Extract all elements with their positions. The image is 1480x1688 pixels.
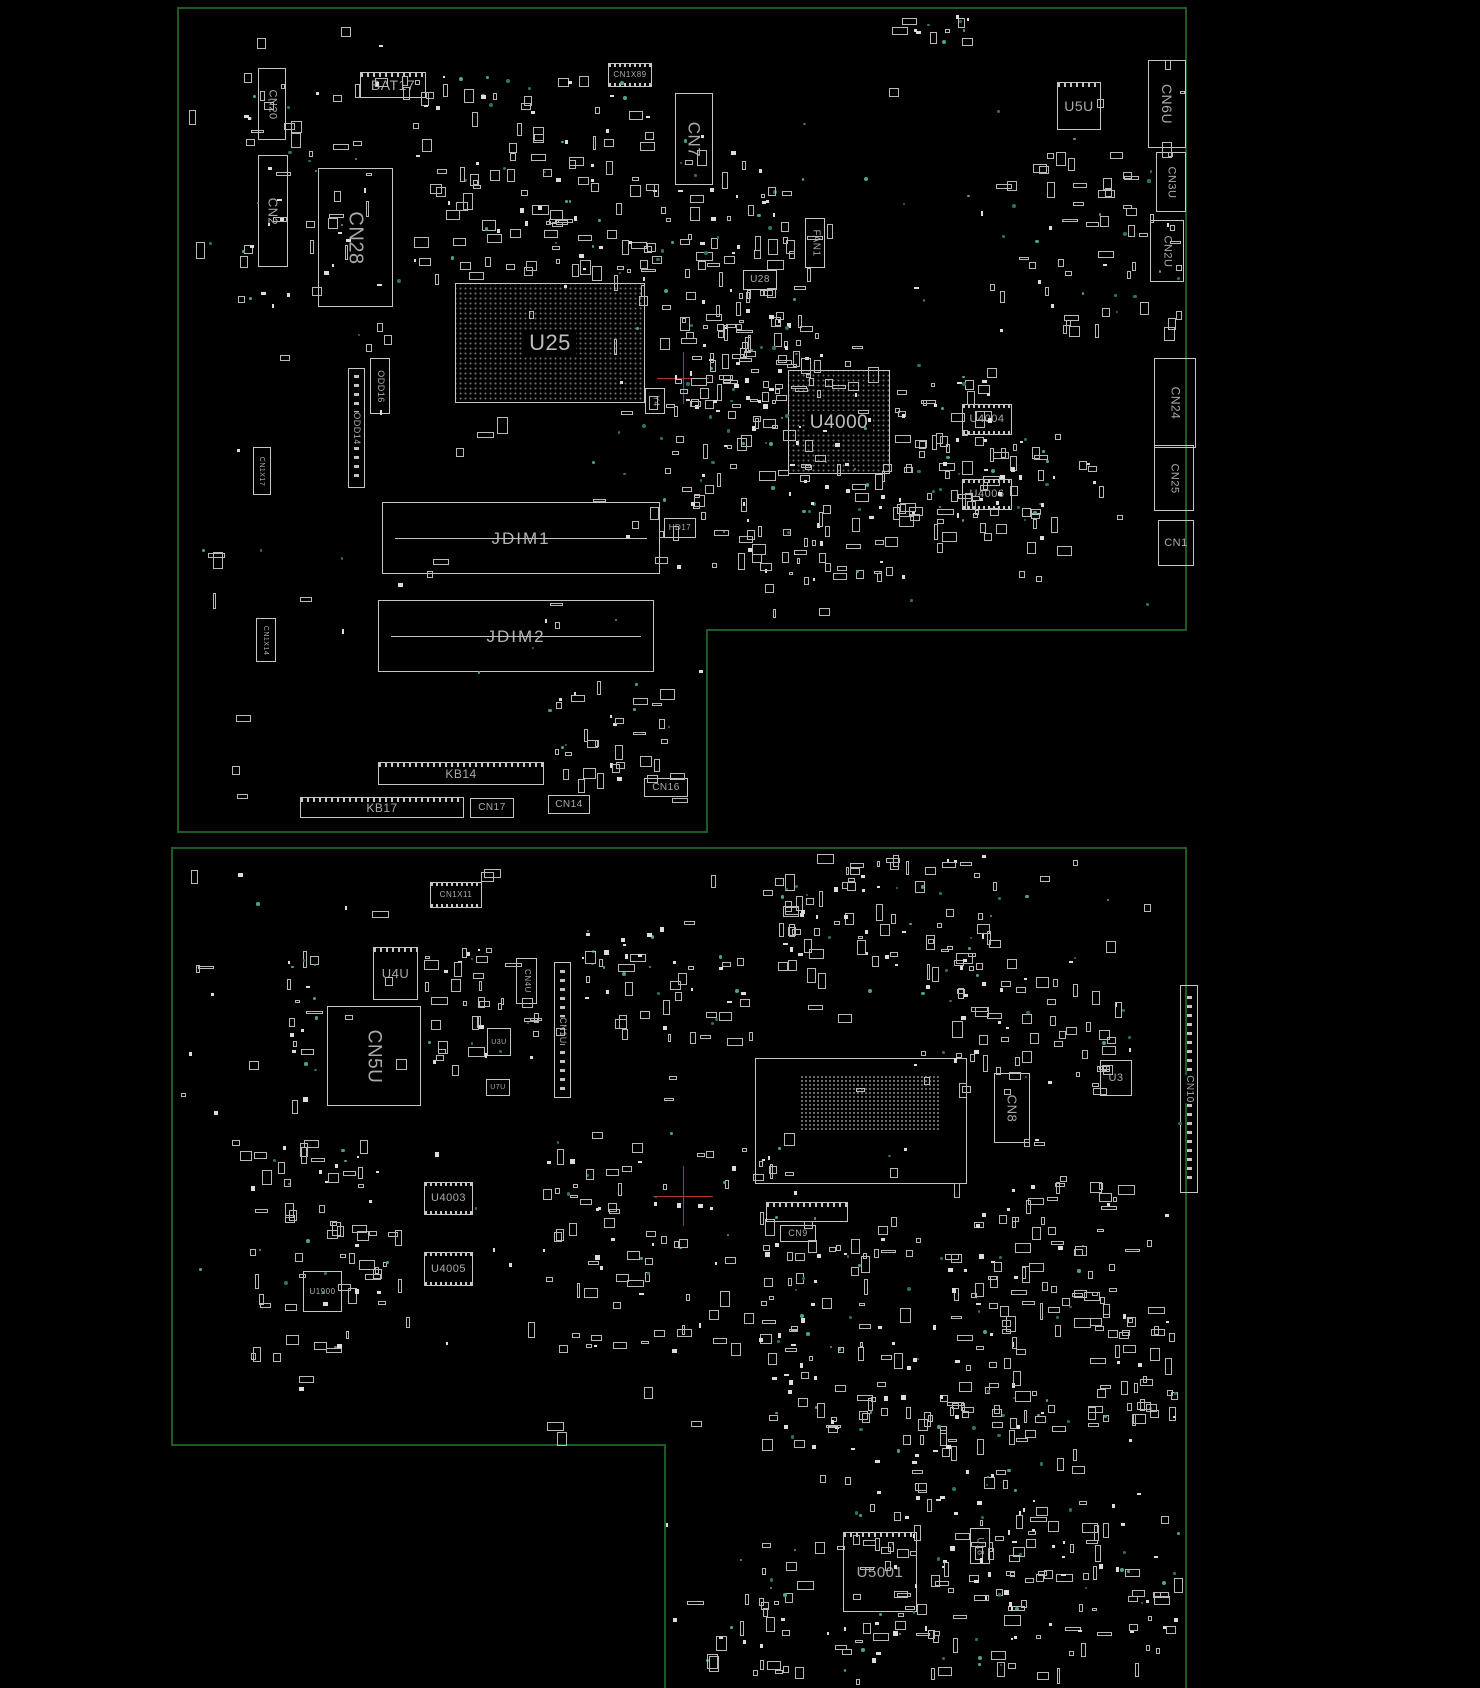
solder-pad [980,498,983,501]
small-part [1000,1306,1010,1316]
small-part [898,1613,904,1617]
solder-pad [881,1238,885,1241]
small-part [930,32,937,45]
via-dot [923,299,925,301]
via-dot [569,200,572,203]
via-dot [719,955,723,959]
small-part [1028,1531,1037,1535]
small-part [952,1021,963,1038]
solder-pad [724,445,726,447]
via-dot [273,1159,276,1162]
small-part [934,524,938,540]
small-part [700,388,709,399]
small-part [959,1083,967,1098]
small-part [672,451,679,455]
via-dot [341,1149,345,1153]
small-part [946,909,954,917]
solder-pad [736,362,740,365]
via-dot [967,195,969,197]
small-part [353,141,362,146]
small-part [954,1183,960,1198]
small-part [832,385,846,390]
small-part [1099,486,1103,498]
small-part [1101,1206,1117,1211]
solder-pad [376,1171,379,1173]
solder-pad [1011,1638,1013,1640]
small-part [1042,1282,1048,1291]
small-part [679,1239,687,1248]
small-part [775,1670,783,1674]
via-dot [506,79,510,83]
small-part [1102,1046,1116,1055]
small-part [809,1356,812,1361]
solder-pad [701,135,704,138]
small-part [329,214,344,219]
small-part [669,1076,677,1079]
solder-pad [817,1254,822,1258]
small-part [1079,1501,1087,1505]
small-part [995,1536,1004,1541]
via-dot [806,894,808,896]
solder-pad [872,1658,876,1663]
small-part [486,948,492,952]
small-part [938,1667,952,1676]
small-part [1032,1391,1037,1396]
small-part [181,1093,186,1097]
via-dot [795,1289,797,1291]
small-part [680,389,689,394]
solder-pad [1112,1504,1115,1508]
small-part [557,1149,563,1165]
via-dot [830,1346,832,1348]
solder-pad [1121,1523,1125,1526]
solder-pad [996,501,999,505]
small-part [801,358,811,374]
via-dot [828,936,831,939]
small-part [1073,183,1088,188]
solder-pad [565,140,568,144]
small-part [1150,1348,1160,1360]
via-dot [927,24,930,27]
small-part [1128,1596,1139,1601]
small-part [1036,1574,1044,1581]
solder-pad [766,200,768,203]
small-part [1032,447,1040,458]
small-part [798,1398,808,1406]
component-label: CN17 [478,803,506,813]
small-part [736,302,741,316]
small-part [694,494,700,498]
small-part [1165,60,1172,70]
via-dot [636,327,639,330]
solder-pad [357,1156,360,1159]
small-part [740,999,750,1007]
via-dot [921,992,924,995]
via-dot [592,245,594,247]
small-part [788,927,796,937]
small-part [710,360,716,372]
solder-pad [1004,1590,1009,1594]
small-part [980,1520,983,1526]
small-part [958,988,964,999]
small-part [1098,251,1115,258]
small-part [817,390,821,398]
small-part [1148,1616,1152,1621]
solder-pad [907,1366,911,1370]
small-part [633,732,646,736]
small-part [815,1542,825,1554]
small-part [1174,1578,1183,1593]
solder-pad [509,1263,512,1267]
small-part [1076,1072,1080,1077]
solder-pad [875,1460,880,1464]
small-part [744,1313,754,1324]
via-dot [1146,603,1149,606]
small-part [1088,1407,1096,1419]
component-label: CN25 [1169,463,1180,493]
small-part [529,311,534,318]
via-dot [932,490,935,493]
solder-pad [646,116,651,119]
small-part [1132,262,1136,270]
small-part [781,222,789,232]
solder-pad [652,1243,655,1246]
small-part [1103,1304,1110,1315]
via-dot [751,349,754,352]
small-part [1003,1480,1008,1489]
small-part [782,191,792,196]
via-dot [783,1593,787,1597]
small-part [976,963,983,970]
solder-pad [398,583,403,587]
small-part [1106,941,1116,953]
small-part [992,1409,1001,1417]
small-part [1103,1523,1109,1538]
small-part [1092,991,1100,1004]
solder-pad [250,245,255,248]
small-part [431,997,447,1005]
small-part [1009,1072,1021,1080]
small-part [717,384,722,401]
small-part [641,1341,649,1344]
small-part [604,139,613,147]
via-dot [945,969,948,972]
small-part [377,323,383,333]
component-u5u: U5U [1057,82,1101,130]
small-part [760,1212,764,1225]
small-part [991,1651,1007,1659]
via-dot [565,744,567,746]
small-part [278,1162,284,1175]
small-part [975,437,984,446]
small-part [1170,225,1174,231]
solder-pad [977,1501,982,1505]
small-part [456,448,463,458]
solder-pad [759,1338,764,1342]
via-dot [1116,311,1118,313]
solder-pad [1007,1208,1010,1211]
solder-pad [820,354,823,357]
solder-pad [904,1148,907,1151]
via-dot [1123,232,1127,236]
solder-pad [895,964,898,966]
small-part [189,110,196,125]
small-part [919,441,926,449]
solder-pad [894,1565,897,1569]
solder-pad [1103,264,1107,266]
solder-pad [778,369,782,373]
small-part [1024,1410,1027,1423]
small-part [902,18,918,26]
solder-pad [759,169,762,173]
small-part [360,1140,368,1153]
small-part [875,540,885,545]
solder-pad [604,950,608,955]
small-part [249,1061,259,1070]
component-cn2u: CN2U [1150,220,1184,282]
solder-pad [346,239,351,242]
solder-pad [1017,1425,1020,1429]
small-part [469,272,483,280]
solder-pad [788,1390,792,1395]
small-part [558,219,573,223]
small-part [769,1415,778,1421]
small-part [1088,1271,1093,1278]
small-part [606,1169,619,1176]
solder-pad [791,1344,796,1346]
via-dot [803,123,805,125]
solder-pad [306,986,310,988]
small-part [951,1446,957,1462]
small-part [617,266,624,270]
small-part [842,882,848,889]
solder-pad [892,1342,895,1345]
small-part [654,1330,665,1338]
solder-pad [974,1050,978,1054]
via-dot [1073,138,1076,141]
solder-pad [914,29,917,32]
solder-pad [845,463,849,466]
small-part [592,266,602,281]
small-part [774,1601,779,1605]
small-part [1165,1358,1172,1375]
small-part [747,530,754,540]
small-part [1024,1139,1030,1147]
solder-pad [796,441,799,445]
component-u28: U28 [743,270,777,290]
small-part [259,1294,263,1305]
small-part [855,493,868,503]
small-part [614,275,618,291]
small-part [580,1199,591,1205]
small-part [251,1353,256,1360]
via-dot [802,178,805,181]
solder-pad [881,495,885,499]
small-part [402,76,407,86]
via-dot [998,897,1001,900]
solder-pad [287,293,290,297]
small-part [1086,1022,1090,1032]
small-part [947,946,953,950]
small-part [815,455,826,463]
small-part [962,430,968,436]
solder-pad [700,242,704,245]
small-part [762,1439,772,1451]
small-part [649,396,658,411]
via-dot [565,200,568,203]
solder-pad [940,1395,944,1399]
small-part [791,1326,799,1331]
small-part [533,1031,540,1036]
small-part [505,963,522,966]
solder-pad [248,117,250,120]
small-part [586,1169,594,1179]
small-part [894,1353,903,1369]
small-part [1093,1566,1097,1580]
solder-pad [964,994,968,997]
small-part [791,386,807,389]
small-part [1092,1608,1098,1612]
small-part [621,411,633,415]
small-part [942,532,957,542]
small-part [236,715,251,723]
solder-pad [925,1626,927,1630]
small-part [877,861,881,868]
small-part [682,487,693,492]
via-dot [939,506,941,508]
small-part [1008,1663,1016,1669]
component-u4005: U4005 [424,1252,473,1286]
via-dot [864,427,867,430]
solder-pad [747,519,749,523]
small-part [812,540,816,545]
component-label: U5U [1064,99,1094,113]
component-cn7: CN7 [675,93,713,185]
small-part [593,499,605,502]
small-part [1057,1668,1060,1683]
small-part [295,1253,303,1262]
small-part [1066,1027,1076,1035]
small-part [965,380,973,390]
small-part [260,91,265,101]
small-part [345,245,348,261]
via-dot [791,1435,795,1439]
small-part [951,1316,963,1319]
via-dot [308,160,311,163]
small-part [1072,1466,1085,1474]
via-dot [793,298,796,301]
small-part [452,1065,459,1075]
small-part [1108,1330,1118,1337]
solder-pad [594,1345,597,1347]
solder-pad [933,1450,938,1452]
solder-pad [915,1454,919,1457]
solder-pad [1117,1361,1120,1365]
solder-pad [1033,1500,1036,1502]
small-part [846,544,861,549]
small-part [895,435,912,442]
small-part [827,224,833,239]
via-dot [1150,170,1153,173]
solder-pad [638,954,642,957]
small-part [783,430,796,441]
small-part [845,361,851,367]
small-part [778,355,787,364]
small-part [1057,546,1072,556]
small-part [664,1098,674,1101]
small-part [403,87,410,100]
small-part [763,890,773,896]
solder-pad [654,1202,657,1206]
small-part [544,230,558,238]
solder-pad [1129,1439,1132,1442]
via-dot [344,1160,347,1163]
small-part [1033,519,1037,529]
small-part [937,923,942,929]
solder-pad [823,430,826,432]
via-dot [592,461,595,464]
solder-pad [967,18,969,21]
solder-pad [591,164,594,167]
component-label: HD17 [669,524,691,532]
solder-pad [564,285,566,288]
via-dot [727,429,731,433]
small-part [1047,1197,1057,1202]
via-dot [940,1257,943,1260]
small-part [900,1308,911,1322]
small-part [1099,1030,1110,1040]
small-part [372,911,389,918]
small-part [301,1147,306,1163]
small-part [1048,1307,1060,1313]
via-dot [709,415,713,419]
small-part [295,1000,300,1004]
solder-pad [789,1380,793,1385]
component-cn9-conn [766,1202,848,1222]
via-dot [1147,179,1150,182]
solder-pad [957,513,959,517]
small-part [767,260,784,269]
via-dot [640,1257,643,1260]
solder-pad [710,1207,713,1210]
solder-pad [596,1208,600,1211]
component-cn10: CN10 [1180,985,1198,1193]
small-part [543,1189,552,1200]
small-part [319,1205,325,1213]
via-dot [1040,1462,1043,1465]
solder-pad [369,1200,372,1203]
small-part [997,1662,1005,1677]
solder-pad [745,378,749,383]
small-part [741,435,751,447]
small-part [1117,515,1122,520]
small-part [787,364,797,367]
small-part [681,338,696,344]
small-part [556,702,562,710]
small-part [690,1032,696,1044]
small-part [593,136,596,151]
solder-pad [610,95,615,97]
small-part [760,290,764,296]
solder-pad [443,76,445,78]
solder-pad [283,1146,285,1150]
solder-pad [585,997,588,999]
small-part [967,391,975,406]
solder-pad [673,961,677,964]
small-part [779,923,784,936]
small-part [856,1679,861,1685]
small-part [891,1217,897,1226]
